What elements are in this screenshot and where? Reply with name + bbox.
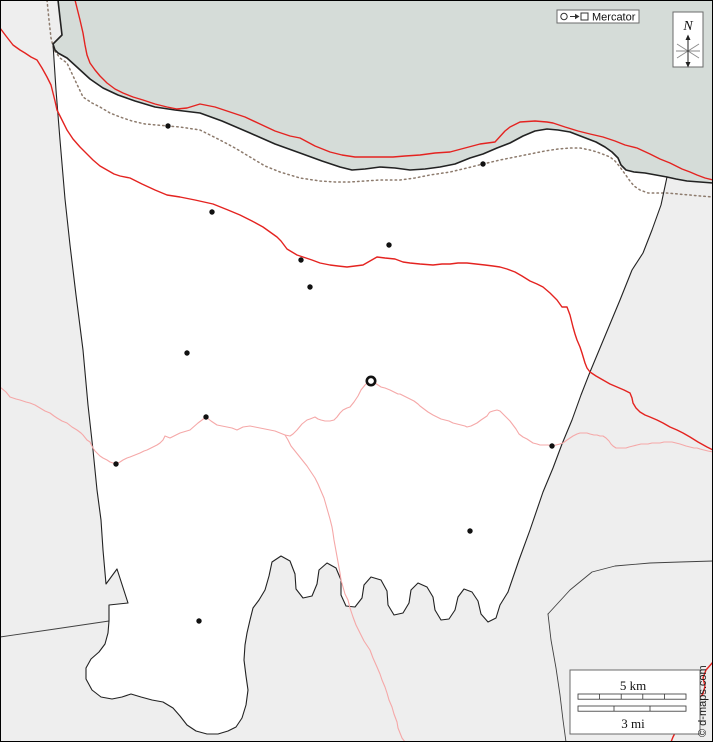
town-dot	[209, 209, 214, 214]
projection-badge: Mercator	[557, 10, 639, 24]
map-canvas: Mercator N 5 km 3 mi © d-maps.com	[0, 0, 713, 742]
town-dot	[307, 284, 312, 289]
scale-mi-label: 3 mi	[621, 716, 645, 731]
town-dot	[203, 414, 208, 419]
town-dot	[298, 257, 303, 262]
town-dot	[386, 242, 391, 247]
credit-label: © d-maps.com	[697, 665, 709, 737]
town-dot	[113, 461, 118, 466]
scale-km-label: 5 km	[620, 678, 646, 693]
projection-label: Mercator	[592, 12, 636, 24]
town-dot	[165, 123, 170, 128]
town-dot	[480, 161, 485, 166]
scale-bar: 5 km 3 mi	[570, 670, 700, 734]
town-dot	[549, 443, 554, 448]
town-dot	[196, 618, 201, 623]
town-dot	[467, 528, 472, 533]
compass-box: N	[673, 12, 703, 68]
capital-dot	[367, 377, 375, 385]
town-dot	[184, 350, 189, 355]
north-label: N	[682, 19, 693, 34]
